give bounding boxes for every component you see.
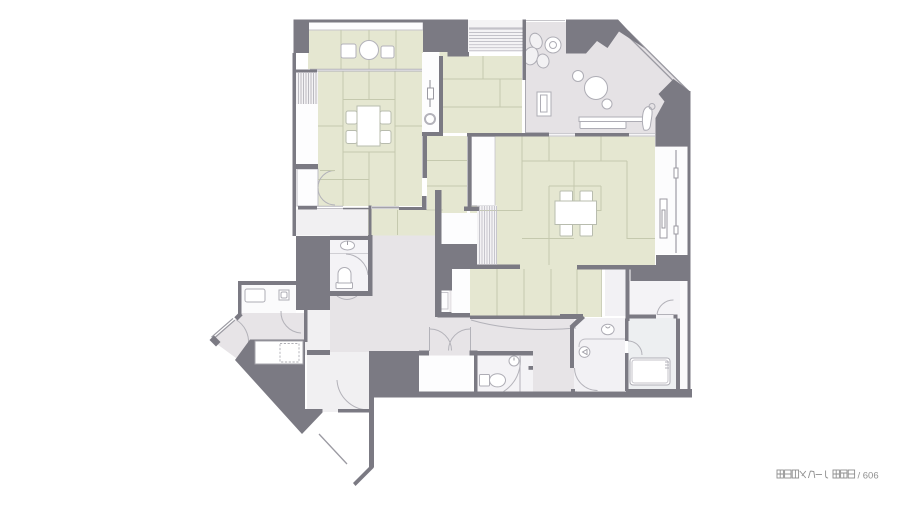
svg-text:/ 606: / 606 [858,471,879,482]
